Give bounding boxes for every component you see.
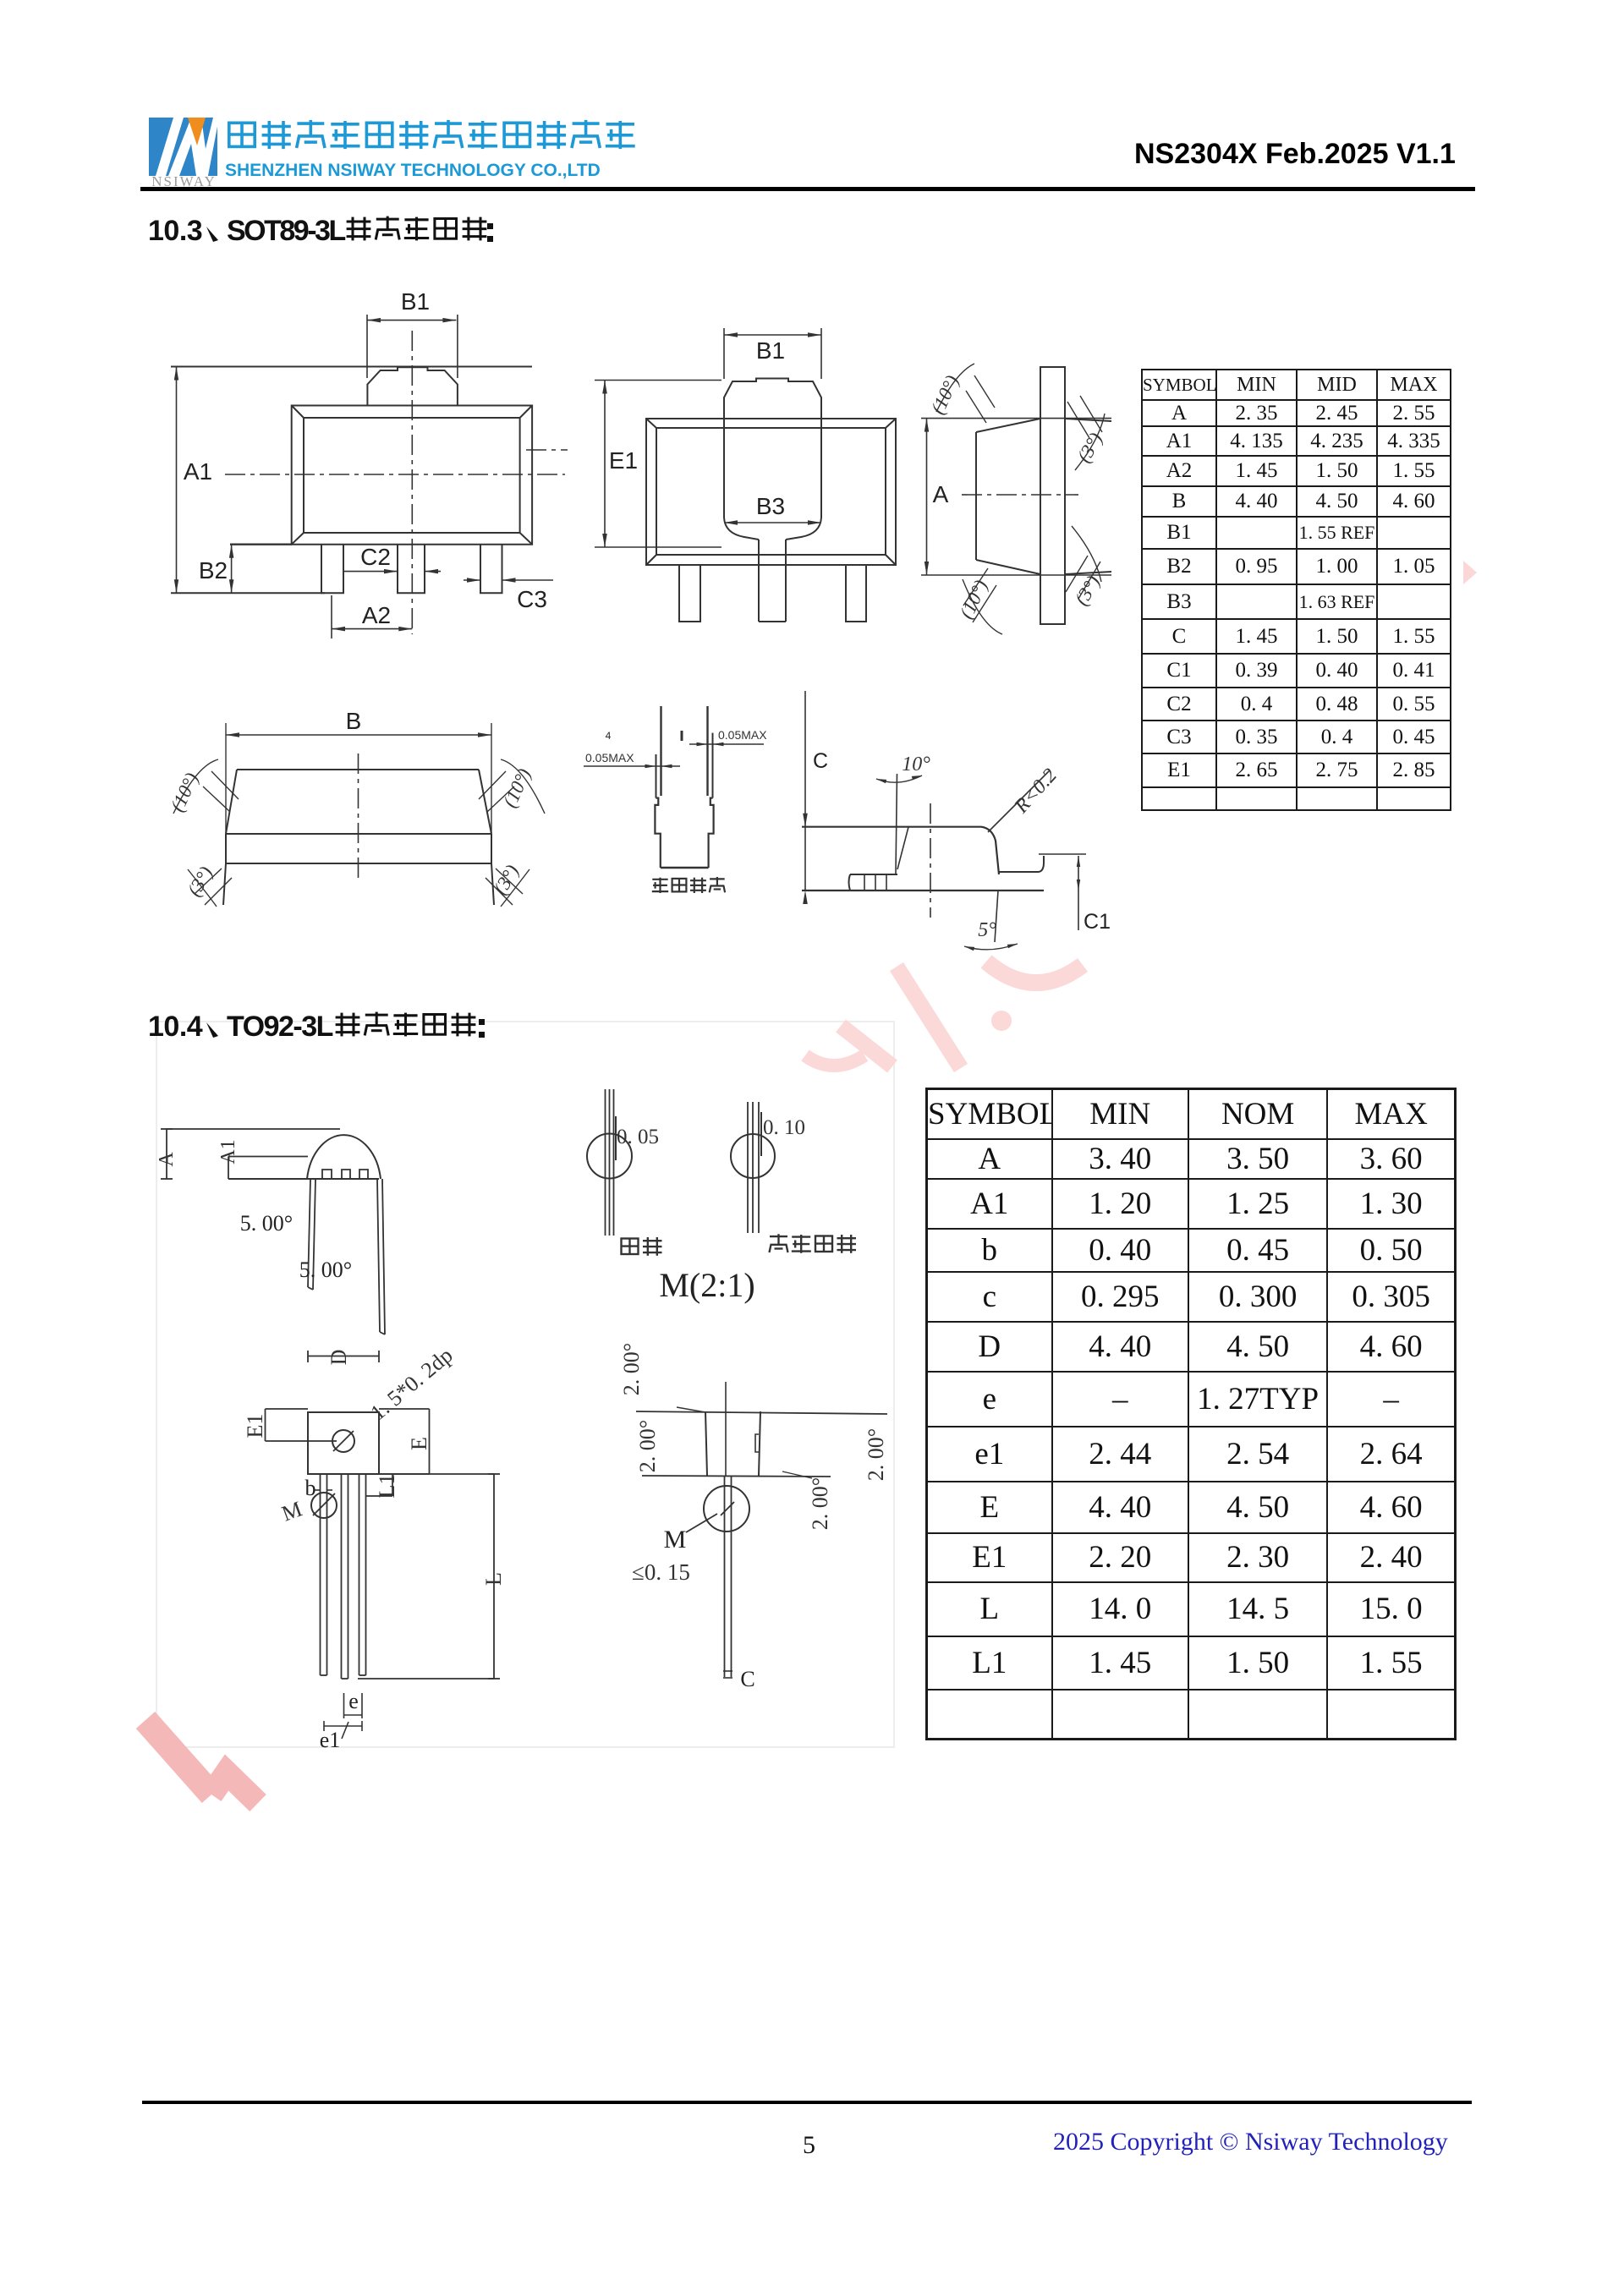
svg-text:M: M bbox=[664, 1526, 687, 1553]
svg-text:2. 00°: 2. 00° bbox=[864, 1428, 888, 1481]
svg-text:C: C bbox=[740, 1667, 754, 1691]
svg-text:2. 00°: 2. 00° bbox=[619, 1343, 644, 1395]
svg-text:2. 00°: 2. 00° bbox=[808, 1477, 832, 1530]
svg-text:2. 00°: 2. 00° bbox=[635, 1420, 660, 1472]
svg-text:≤0. 15: ≤0. 15 bbox=[632, 1559, 690, 1585]
